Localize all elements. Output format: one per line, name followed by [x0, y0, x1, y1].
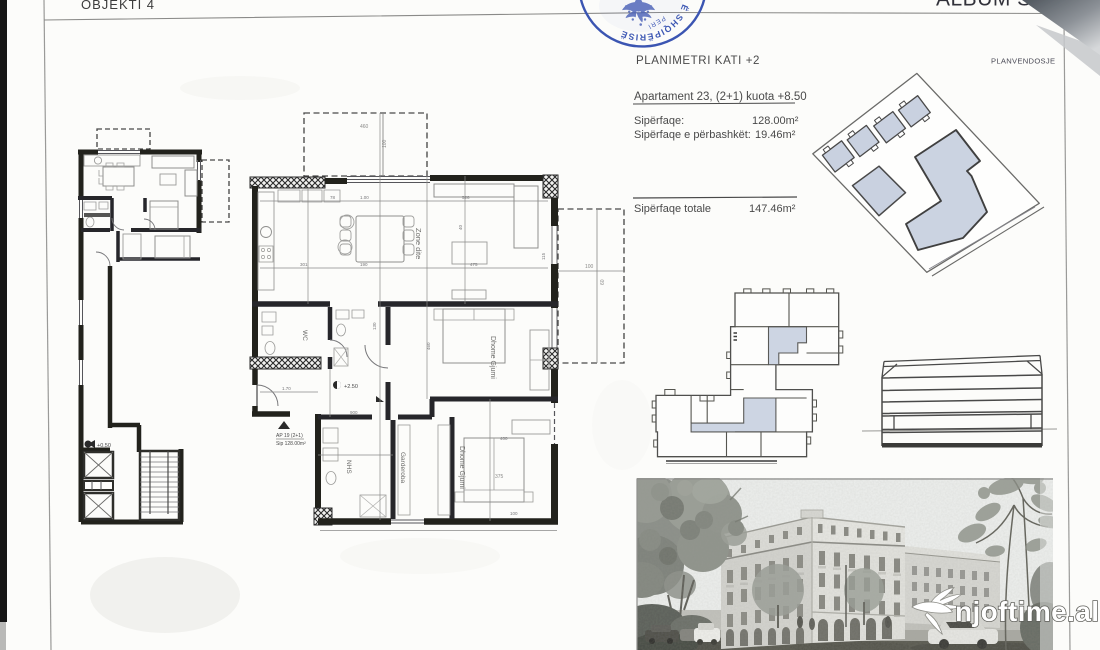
svg-text:301: 301	[300, 262, 308, 267]
svg-text:OBJEKTI 4: OBJEKTI 4	[81, 0, 155, 12]
svg-text:100: 100	[585, 264, 594, 270]
svg-text:Apartament 23, (2+1) kuota +8.: Apartament 23, (2+1) kuota +8.50	[634, 91, 807, 103]
svg-text:WC: WC	[301, 330, 308, 341]
svg-text:AP 19 (2+1): AP 19 (2+1)	[276, 433, 303, 439]
svg-text:Sip 128.00m²: Sip 128.00m²	[276, 441, 306, 447]
svg-text:Sipërfaqe totale: Sipërfaqe totale	[634, 203, 711, 215]
svg-text:100: 100	[382, 139, 388, 148]
svg-text:460: 460	[426, 342, 431, 350]
svg-text:375: 375	[495, 474, 504, 480]
svg-text:400: 400	[500, 436, 508, 441]
svg-text:60: 60	[600, 279, 606, 285]
svg-text:Sipërfaqe:: Sipërfaqe:	[634, 115, 684, 127]
svg-text:40: 40	[458, 224, 463, 230]
svg-text:Garderoba: Garderoba	[399, 452, 406, 483]
svg-text:NHS: NHS	[345, 460, 352, 474]
svg-text:460: 460	[360, 124, 369, 130]
svg-text:+2.50: +2.50	[344, 384, 358, 390]
svg-text:526: 526	[462, 195, 470, 200]
svg-text:900: 900	[350, 410, 358, 415]
svg-text:128.00m²: 128.00m²	[752, 115, 799, 127]
svg-text:njoftime.al: njoftime.al	[955, 596, 1099, 627]
svg-text:475: 475	[470, 262, 478, 267]
svg-text:Zone dite: Zone dite	[414, 228, 423, 259]
svg-text:1.70: 1.70	[282, 386, 291, 391]
svg-text:Dhome Gjumi: Dhome Gjumi	[458, 446, 465, 489]
svg-text:115: 115	[541, 252, 546, 260]
svg-text:100: 100	[510, 511, 518, 516]
svg-text:190: 190	[360, 262, 368, 267]
svg-text:Dhome Gjumi: Dhome Gjumi	[489, 336, 496, 379]
svg-text:78: 78	[330, 195, 336, 200]
svg-text:PLANIMETRI KATI +2: PLANIMETRI KATI +2	[636, 55, 760, 67]
svg-text:PLANVENDOSJE: PLANVENDOSJE	[991, 57, 1055, 66]
svg-text:130: 130	[372, 322, 377, 330]
svg-text:147.46m²: 147.46m²	[749, 203, 796, 215]
svg-text:1.00: 1.00	[360, 195, 369, 200]
svg-text:Sipërfaqe e përbashkët:: Sipërfaqe e përbashkët:	[634, 129, 751, 141]
svg-text:19.46m²: 19.46m²	[755, 129, 796, 141]
